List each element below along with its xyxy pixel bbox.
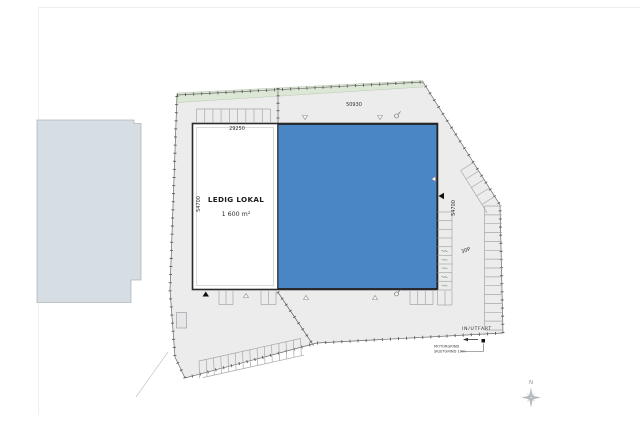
dimension-vacant-width: 29250 <box>229 127 245 132</box>
gate-note-line1: MOTORGRIND <box>434 345 459 349</box>
utility-box <box>177 313 187 329</box>
gate-marker-icon <box>482 339 486 343</box>
dimension-right-depth: 54700 <box>451 200 456 216</box>
dimension-top: 50930 <box>346 103 362 108</box>
dimension-left-depth: 54700 <box>196 196 201 212</box>
vacant-unit-label: LEDIG LOKAL <box>207 197 263 204</box>
compass-north-label: N <box>529 380 533 385</box>
gate-direction-arrow-icon <box>463 338 468 341</box>
gate-note-line2: SKJUTGRIND 10m <box>434 350 466 354</box>
road-edge-line <box>136 352 168 397</box>
site-plan-sheet: 50930 29250 54700 54700 LEDIG LOKAL 1 60… <box>0 0 640 427</box>
neighbor-building <box>37 120 141 303</box>
vacant-unit-area: 1 600 m² <box>221 211 250 217</box>
site-plan-drawing <box>0 0 640 427</box>
occupied-unit <box>278 124 437 288</box>
compass-rose-icon <box>521 388 541 408</box>
entrance-label: IN/UTFART <box>462 326 492 331</box>
